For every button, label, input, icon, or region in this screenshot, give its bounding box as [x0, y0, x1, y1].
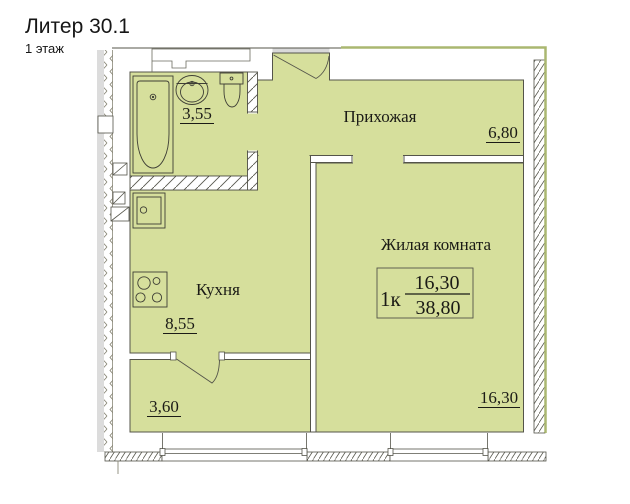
vent-icon: [113, 192, 125, 204]
wall-bathroom-right-bottom: [248, 152, 258, 190]
room-balcony: [130, 360, 311, 433]
wall-kitchen-living: [311, 156, 317, 433]
hallway-label: Прихожая: [344, 107, 417, 126]
living-room-window: [388, 449, 488, 462]
balcony-door-jamb-right: [219, 352, 225, 360]
balcony-area: 3,60: [149, 397, 179, 416]
living-room-label: Жилая комната: [381, 235, 492, 254]
stairwell-outline: [152, 49, 250, 72]
balcony-glazing-window: [160, 449, 307, 462]
opening-hallway-living: [353, 151, 403, 165]
wall-niche: [98, 116, 113, 133]
bottom-exterior-wall: [105, 433, 546, 474]
opening-hallway-corridor: [259, 151, 310, 164]
opening-bathroom-door: [244, 114, 260, 151]
wall-bathroom-bottom: [130, 176, 258, 190]
left-wall-insulation-zigzag: [104, 50, 113, 452]
floorplan-page: Прихожая 6,80 3,55 Жилая комната 16,30 К…: [0, 0, 630, 504]
wall-bathroom-right-top: [248, 72, 258, 112]
wall-hallway-living-left: [311, 156, 353, 163]
page-title: Литер 30.1: [25, 15, 130, 38]
living-room-area: 16,30: [480, 388, 518, 407]
bottom-hatch-middle: [307, 452, 390, 461]
apartment-living-area: 16,30: [415, 272, 460, 294]
vent-icon: [111, 207, 129, 221]
vent-icon: [113, 163, 127, 175]
window-reveal-lines: [163, 433, 488, 449]
balcony-door-jamb-left: [171, 352, 177, 360]
bottom-hatch-right: [488, 452, 546, 461]
hallway-area: 6,80: [488, 123, 518, 142]
wall-right-exterior: [534, 60, 545, 433]
apartment-total-area: 38,80: [416, 297, 461, 319]
floor-subtitle: 1 этаж: [25, 41, 64, 56]
kitchen-area: 8,55: [165, 314, 195, 333]
left-wall-shadow: [97, 50, 104, 452]
bathroom-area: 3,55: [182, 104, 212, 123]
entrance-threshold: [273, 48, 330, 53]
opening-balcony-door: [176, 350, 219, 364]
wall-hallway-living-right: [404, 156, 524, 163]
apartment-type: 1к: [380, 287, 402, 311]
bottom-hatch-left: [105, 452, 162, 461]
kitchen-label: Кухня: [196, 280, 240, 299]
floorplan-drawing: Прихожая 6,80 3,55 Жилая комната 16,30 К…: [0, 0, 630, 504]
